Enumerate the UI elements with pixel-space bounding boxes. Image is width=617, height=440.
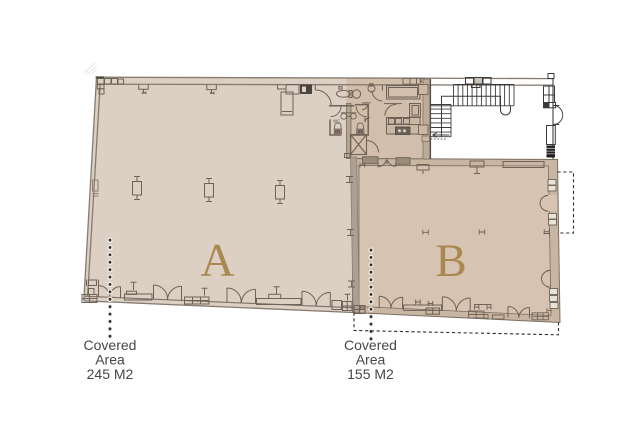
svg-text:B: B — [435, 235, 466, 287]
svg-text:155 M2: 155 M2 — [347, 366, 394, 382]
svg-text:A: A — [201, 235, 235, 287]
svg-text:245 M2: 245 M2 — [87, 366, 134, 382]
